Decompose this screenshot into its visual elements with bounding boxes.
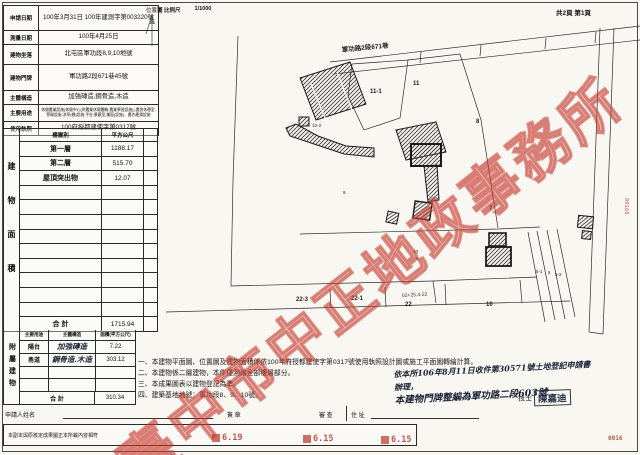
table-row: 第一層1188.17 [20,142,157,157]
table-header-row: 樓層別 平方公尺 [20,129,157,142]
table-row [20,288,157,303]
annex-building-table: 附屬建物 主要用途 主體構造 面積(平方公尺) 陽台 加強磚造 7.22 甬道 … [3,330,136,405]
stamp-date: 6.15 [313,434,333,444]
total-value: 1715.94 [102,317,144,331]
use-cell [20,367,49,379]
section-label-column: 附屬建物 [4,330,20,404]
divider [346,406,347,421]
col-header-use: 主要用途 [20,330,49,340]
date-stamp: 6.15 [303,434,333,444]
parcel-label: 11 [413,81,420,87]
table-row [20,379,135,392]
col-header-structure: 主體構造 [49,330,96,340]
area-cell: 303.12 [96,354,135,366]
road-number-labels: 5-1 5 5-2 [536,269,562,277]
floor-cell [20,273,102,287]
table-row: 申請日期 100年3月31日 100年建測字第003220號 [4,6,158,31]
road-number: 5-1 [536,269,543,274]
area-cell: 515.70 [102,157,144,171]
note-cell [144,186,157,200]
walkway [286,124,374,157]
parcel-boundaries [166,26,640,334]
road-number: 5-2 [555,272,562,277]
table-row [20,200,157,215]
table-row: 主體構造 加強磚造,鋼骨造,木造 [4,91,158,105]
row-label: 主要用途 [4,105,39,121]
parcel-label: 11-1 [370,89,382,95]
stamp-block-icon [381,436,389,444]
note-cell [144,288,157,302]
row-label: 主體構造 [4,91,39,104]
floor-cell [20,244,102,258]
area-cell [102,288,144,302]
table-header-row: 主要用途 主體構造 面積(平方公尺) [20,330,135,341]
total-value: 310.34 [95,392,135,404]
note-cell [144,215,157,229]
row-value: 100年4月25日 [39,31,158,44]
area-cell [102,259,144,273]
area-cell [102,244,144,258]
stamp-serial: 09168 [623,198,629,215]
note-cell [144,259,157,273]
section-label-column: 建物面積 [4,129,20,331]
main-building [300,62,366,120]
use-cell [20,379,49,391]
parcel-label: 7 [489,206,493,212]
parcel-label: 22-1 [351,296,364,302]
stamp-date: 6.19 [222,433,242,443]
parcel-label: 8 [476,119,480,125]
parcel-label: 22 [405,302,412,308]
area-cell [96,379,135,391]
table-row: 第二層515.70 [20,157,157,172]
floor-cell [20,200,102,214]
row-value: 100年3月31日 100年建測字第003220號 [39,6,158,30]
building-area-table: 建物面積 樓層別 平方公尺 第一層1188.17 第二層515.70 屋頂突出物… [3,128,158,332]
row-value: 休閒農業設施(休閒中心(供農業休閒體驗,農業學習設施)),農舍休憩室,警衛設施,… [39,105,158,121]
date-stamp: 6.15 [381,435,411,445]
row-label: 建物坐落 [4,45,39,64]
floor-cell [20,230,102,244]
address-line [371,406,479,419]
floor-cell [20,215,102,229]
area-cell: 7.22 [96,341,135,353]
applicant-row: 申請人姓名 簽 章 審 查 住 址 [3,404,583,424]
area-cell: 1188.17 [102,142,144,156]
footer-note-text: 本副本與原核定成果圖正本所載內容相符 [8,432,98,439]
applicant-name-line [63,406,213,419]
table-row [20,367,135,380]
stamp-block-icon [212,434,220,442]
floor-cell: 第一層 [20,142,102,156]
serial-stamp: 0016 [608,435,622,442]
structure-cell: 加強磚造 [49,341,96,353]
note-cell [144,230,157,244]
map-scale: 1/1000 [195,6,212,14]
small-label: 10-2 [312,123,322,128]
table-row [20,244,157,259]
table-row [20,259,157,274]
total-row: 合 計 1715.94 [20,317,157,331]
table-row [20,273,157,288]
section-label: 附屬建物 [7,343,17,391]
structure-cell [49,379,96,391]
area-cell [102,230,144,244]
use-cell: 甬道 [20,354,49,366]
road-name-label: 軍功路2段671巷 [341,40,389,54]
area-cell: 12.07 [102,171,144,185]
small-label: 9 [343,190,346,195]
table-row: 主要用途 休閒農業設施(休閒中心(供農業休閒體驗,農業學習設施)),農舍休憩室,… [4,105,158,122]
small-label: 9 [416,256,419,261]
stamp-date: 6.15 [391,435,411,445]
table-row [20,230,157,245]
scanned-survey-document: 11-1 11 8 7 22-3 22-1 22 10 10-2 9 10 9 … [0,0,640,455]
south-building [486,233,511,266]
area-cell [96,367,135,379]
floor-cell [20,288,102,302]
page-count-label: 共2頁 第1頁 [556,7,591,17]
total-label: 合 計 [20,317,102,331]
structure-cell [49,367,96,379]
area-cell [102,186,144,200]
serial-stamp-vertical: 09168 [623,198,629,215]
section-label: 建物面積 [6,162,17,298]
row-label: 測量日期 [4,31,39,44]
applicant-name-label: 申請人姓名 [5,410,35,419]
area-cell [102,215,144,229]
review-label: 審 查 [319,410,333,419]
col-header-area: 面積(平方公尺) [96,330,135,340]
date-stamp: 6.19 [212,433,242,443]
area-cell [102,200,144,214]
note-cell [144,244,157,258]
parcel-label: 10 [486,302,493,308]
stamp-serial: 0016 [608,435,622,442]
table-row [20,215,157,230]
small-label: 10 [413,249,419,254]
officer-title: 技士 [518,393,532,403]
structure-cell: 鋼骨造.木造 [49,354,96,366]
table-row [20,186,157,201]
table-row: 甬道 鋼骨造.木造 303.12 [20,354,135,367]
row-value: 加強磚造,鋼骨造,木造 [39,91,158,104]
note-cell [144,157,157,171]
road-number: 5 [548,270,551,275]
floor-cell [20,186,102,200]
table-row: 建物門牌 軍功路2段671巷45號 [4,65,158,91]
row-value: 軍功路2段671巷45號 [39,65,158,90]
table-row: 屋頂突出物12.07 [20,171,157,186]
sign-label: 簽 章 [227,410,241,419]
note-cell [144,303,157,317]
row-label: 建物門牌 [4,65,39,90]
row-value: 北屯區軍功段8,9,10地號 [39,45,158,64]
stamp-block-icon [303,435,311,443]
vertical-annex [424,165,439,202]
table-row [20,303,157,318]
survey-annotation: 62+25.4-22 [402,292,428,299]
table-row: 測量日期 100年4月25日 [4,31,158,45]
note-cell [144,273,157,287]
floor-cell: 屋頂突出物 [20,171,102,185]
area-cell [102,303,144,317]
col-header-area: 平方公尺 [102,129,144,141]
building-info-table: 申請日期 100年3月31日 100年建測字第003220號 測量日期 100年… [3,5,159,136]
row-label: 申請日期 [4,6,39,30]
parcel-label: 22-3 [296,297,309,303]
note-cell [144,142,157,156]
footer-note-box: 本副本與原核定成果圖正本所載內容相符 [3,424,417,446]
note-cell [144,317,157,331]
table-row: 陽台 加強磚造 7.22 [20,341,135,354]
address-label: 住 址 [351,410,365,419]
note-cell [144,171,157,185]
col-header-floor: 樓層別 [20,129,102,141]
total-row: 合 計 310.34 [20,392,135,404]
total-label: 合 計 [20,392,94,404]
col-header-note [144,129,157,141]
note-cell [144,200,157,214]
floor-cell [20,303,102,317]
area-cell [102,273,144,287]
building-footprints [286,62,594,266]
use-cell: 陽台 [20,341,49,353]
floor-cell: 第二層 [20,157,102,171]
table-row: 建物坐落 北屯區軍功段8,9,10地號 [4,45,158,65]
floor-cell [20,259,102,273]
